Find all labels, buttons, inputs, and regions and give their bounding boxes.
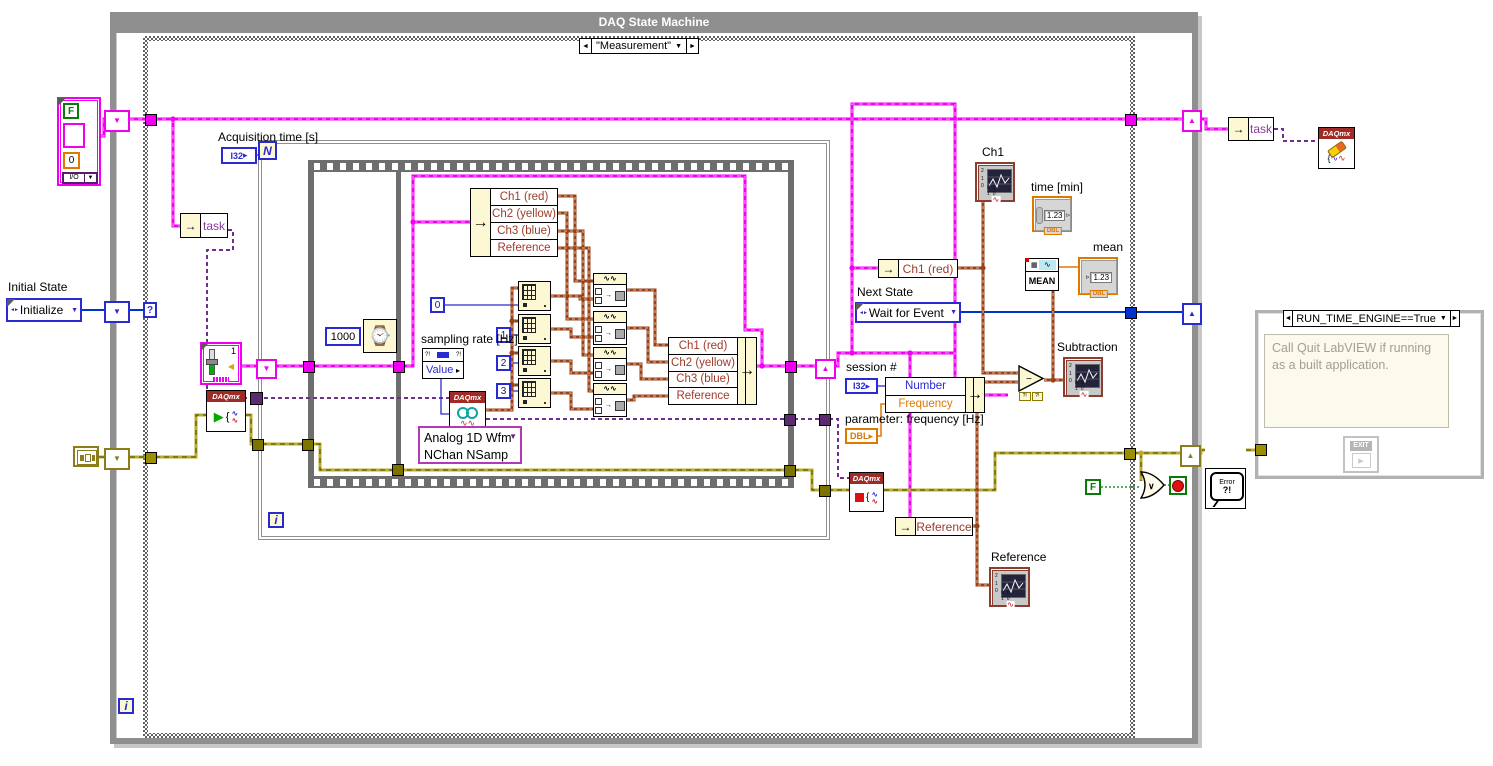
while-loop-iteration-terminal[interactable]: i — [118, 698, 134, 714]
array-grid-icon — [522, 317, 536, 333]
tunnel-error[interactable] — [1255, 444, 1267, 456]
for-loop-shift-register-right[interactable]: ▲ — [815, 359, 836, 379]
daqmx-stop-task-vi[interactable]: DAQmx { ∿∿ — [849, 472, 884, 512]
tunnel-task[interactable] — [784, 414, 796, 426]
task-unbundle-node-outer[interactable]: → task — [1228, 117, 1274, 141]
chevron-down-icon[interactable]: ▼ — [1440, 315, 1447, 322]
stop-square-icon — [855, 493, 864, 502]
reference-unbundle-node[interactable]: → Reference — [895, 517, 973, 536]
append-waveforms-vi[interactable]: ∿∿ → — [593, 383, 627, 417]
next-state-label: Next State — [857, 286, 913, 300]
indicator-value: 1.23 — [1044, 210, 1066, 221]
svg-text:∨: ∨ — [1148, 481, 1155, 491]
array-grid-icon — [522, 349, 536, 365]
coercion-dots: ?! ?! — [1019, 392, 1043, 401]
svg-text:−: − — [1026, 374, 1032, 385]
tunnel-error[interactable] — [252, 439, 264, 451]
daqmx-banner: DAQmx — [450, 392, 485, 403]
unbundle-field[interactable]: Ch3 (blue) — [491, 223, 557, 240]
index-array-node[interactable] — [518, 314, 551, 344]
mean-vi[interactable]: ▦ ∿ MEAN — [1025, 258, 1059, 291]
case-selector[interactable]: ◄ "Measurement"▼ ► — [579, 38, 699, 54]
tunnel-cluster[interactable] — [145, 114, 157, 126]
index-array-node[interactable] — [518, 281, 551, 311]
initial-state-value: Initialize — [20, 303, 63, 317]
case-prev-arrow[interactable]: ◄ — [580, 39, 592, 53]
chevron-down-icon[interactable]: ▼ — [675, 43, 682, 50]
bubble-tail — [1213, 500, 1220, 507]
chevron-down-icon[interactable]: ▼ — [71, 307, 78, 314]
selector-line1: Analog 1D Wfm — [424, 430, 516, 447]
daqmx-banner: DAQmx — [207, 391, 245, 402]
index-constant[interactable]: 2 — [496, 355, 511, 371]
bundle-field-number[interactable]: Number — [886, 378, 965, 396]
sequence-top-border[interactable] — [308, 160, 794, 172]
bundle-arrow-icon: → — [967, 386, 983, 404]
session-label: session # — [846, 361, 897, 375]
dbl-type-tag: DBL — [1044, 227, 1062, 235]
chevron-down-icon[interactable]: ▼ — [509, 432, 517, 443]
bundle-field[interactable]: Ch3 (blue) — [669, 372, 737, 389]
sequence-right-border[interactable] — [788, 160, 794, 488]
while-loop-title: DAQ State Machine — [110, 12, 1198, 33]
reference-field: Reference — [916, 518, 972, 535]
parameter-dbl-constant[interactable]: DBL▸ — [845, 428, 878, 444]
sequence-bottom-border[interactable] — [308, 476, 794, 488]
time-indicator[interactable]: 1.23 ▹ DBL — [1032, 196, 1072, 232]
enum-increment-icon[interactable]: ◄► — [10, 307, 18, 313]
parameter-label: parameter: frequency [Hz] — [845, 413, 984, 427]
ch1-red-field: Ch1 (red) — [899, 260, 957, 277]
append-waveforms-vi[interactable]: ∿∿ → — [593, 347, 627, 381]
ch1-red-unbundle-node[interactable]: → Ch1 (red) — [878, 259, 958, 278]
reference-chart-terminal[interactable]: 210 00 10 ∿ — [989, 567, 1030, 607]
tunnel-error[interactable] — [392, 464, 404, 476]
daqmx-clear-task-vi[interactable]: DAQmx {∿∿ — [1318, 127, 1355, 169]
append-waveforms-vi[interactable]: ∿∿ → — [593, 311, 627, 345]
labview-block-diagram: DAQ State Machine ◄ "Measurement"▼ ► ◄ R… — [0, 0, 1493, 766]
daqmx-banner: DAQmx — [850, 473, 883, 484]
for-loop-shift-register-left[interactable]: ▼ — [256, 359, 277, 379]
subtract-function[interactable]: − — [1018, 365, 1045, 393]
numeric-zero-constant[interactable]: 0 — [63, 152, 80, 169]
property-icon — [437, 352, 449, 358]
play-icon: ▶ — [214, 409, 224, 425]
read-polymorphic-selector[interactable]: Analog 1D Wfm NChan NSamp ▼ — [418, 426, 522, 464]
session-i32-constant[interactable]: I32▸ — [845, 378, 878, 394]
array-grid-icon — [522, 381, 536, 397]
index-constant[interactable]: 0 — [430, 297, 445, 313]
shift-register-left-error[interactable]: ▼ — [104, 448, 130, 470]
settings-cluster-constant[interactable]: F 0 I/O ▼ — [57, 97, 101, 186]
next-state-enum[interactable]: ◄► Wait for Event ▼ — [855, 302, 961, 323]
graph-icon: 210 00 10 ∿ — [992, 570, 1029, 606]
io-constant[interactable]: I/O ▼ — [62, 172, 98, 184]
tunnel-error[interactable] — [145, 452, 157, 464]
tunnel-error[interactable] — [1124, 448, 1136, 460]
error-cluster-constant[interactable] — [73, 446, 99, 467]
tunnel-enum[interactable] — [1125, 307, 1137, 319]
unbundle-field[interactable]: Ch1 (red) — [491, 189, 557, 206]
run-case-selector[interactable]: ◄ RUN_TIME_ENGINE==True▼ ► — [1283, 310, 1460, 327]
tunnel-cluster[interactable] — [303, 361, 315, 373]
channels-bundle-node[interactable]: Ch1 (red) Ch2 (yellow) Ch3 (blue) Refere… — [668, 337, 757, 405]
subvi-label-strip — [213, 377, 229, 382]
run-case-selector-label: RUN_TIME_ENGINE==True — [1296, 313, 1436, 325]
graph-icon: 210 00 10 ∿ — [978, 165, 1014, 201]
tunnel-error[interactable] — [302, 439, 314, 451]
wait-ms-constant[interactable]: 1000 — [325, 327, 361, 346]
i32-count-constant[interactable]: I32▸ — [221, 147, 257, 164]
mean-indicator-label: mean — [1093, 241, 1123, 255]
case-selector-terminal[interactable]: ? — [143, 302, 157, 318]
run-case-prev-arrow[interactable]: ◄ — [1284, 311, 1293, 326]
unbundle-field[interactable]: Ch2 (yellow) — [491, 206, 557, 223]
tunnel-error[interactable] — [784, 465, 796, 477]
speech-bubble-icon: Error ?! — [1210, 472, 1244, 501]
mean-indicator[interactable]: ▹ 1.23 DBL — [1078, 257, 1118, 295]
quit-labview-vi[interactable]: EXIT ▶ — [1343, 436, 1379, 473]
indicator-value: 1.23 — [1090, 272, 1112, 283]
subtraction-chart-terminal[interactable]: 210 00 10 ∿ — [1063, 357, 1103, 397]
tunnel-cluster[interactable] — [785, 361, 797, 373]
graph-icon: 210 00 10 ∿ — [1066, 360, 1102, 396]
param-bundle-node[interactable]: Number Frequency → — [885, 377, 985, 413]
stop-condition-terminal[interactable] — [1169, 476, 1187, 495]
reference-chart-label: Reference — [991, 551, 1046, 565]
exit-label: EXIT — [1350, 441, 1372, 451]
unbundle-arrow-icon: → — [896, 518, 916, 535]
tunnel-task[interactable] — [819, 414, 831, 426]
init-position-subvi[interactable]: 1 ◀ — [200, 342, 242, 385]
mean-label: MEAN — [1026, 272, 1058, 290]
bundle-field[interactable]: Reference — [669, 388, 737, 404]
bundle-field[interactable]: Ch2 (yellow) — [669, 355, 737, 372]
tunnel-error[interactable] — [819, 485, 831, 497]
wave-icon: ∿ — [1039, 260, 1056, 270]
task-unbundle-node[interactable]: → task — [180, 213, 228, 238]
task-field-label: task — [1249, 118, 1273, 140]
daqmx-banner: DAQmx — [1319, 128, 1354, 139]
shift-register-right-error[interactable]: ▲ — [1180, 445, 1201, 467]
index-array-node[interactable] — [518, 378, 551, 408]
element-icon — [544, 305, 546, 307]
tunnel-task[interactable] — [250, 392, 263, 405]
ch1-chart-terminal[interactable]: 210 00 10 ∿ — [975, 162, 1015, 202]
boolean-false-constant[interactable]: F — [1085, 479, 1101, 495]
pointer-icon: ◀ — [228, 362, 234, 371]
channels-unbundle-node[interactable]: → Ch1 (red) Ch2 (yellow) Ch3 (blue) Refe… — [470, 188, 558, 257]
next-state-value: Wait for Event — [869, 306, 944, 320]
knob-icon — [1036, 207, 1043, 224]
dbl-type-tag: DBL — [1090, 290, 1108, 298]
shift-register-left-state[interactable]: ▼ — [104, 301, 130, 323]
boolean-false-constant[interactable]: F — [63, 103, 79, 119]
run-case-next-arrow[interactable]: ► — [1450, 311, 1459, 326]
shift-register-right-cluster[interactable]: ▲ — [1182, 110, 1202, 132]
index-array-node[interactable] — [518, 346, 551, 376]
append-waveforms-vi[interactable]: ∿∿ → — [593, 273, 627, 307]
bundle-field[interactable]: Ch1 (red) — [669, 338, 737, 355]
unbundle-arrow-icon: → — [471, 189, 491, 256]
bundle-output-strip: → — [965, 378, 984, 412]
bundle-field-frequency[interactable]: Frequency — [886, 396, 965, 413]
shift-register-right-state[interactable]: ▲ — [1182, 303, 1202, 325]
shift-register-left-cluster[interactable]: ▼ — [104, 110, 130, 132]
tunnel-cluster[interactable] — [393, 361, 405, 373]
time-indicator-label: time [min] — [1031, 181, 1083, 195]
waveform-icon: ∿∿ — [594, 274, 626, 285]
io-glyph: I/O — [64, 174, 84, 182]
array-grid-icon — [522, 284, 536, 300]
case-selector-label: "Measurement" — [596, 40, 671, 52]
unbundle-field[interactable]: Reference — [491, 240, 557, 256]
for-loop-iteration-terminal[interactable]: i — [268, 512, 284, 528]
disabled-play-icon: ▶ — [1352, 453, 1371, 468]
empty-cluster-element[interactable] — [63, 123, 85, 148]
simple-error-handler-vi[interactable]: Error ?! — [1205, 468, 1246, 509]
slider-thumb-icon — [206, 359, 218, 365]
unbundle-arrow-icon: → — [879, 260, 899, 277]
subtraction-chart-label: Subtraction — [1057, 341, 1118, 355]
run-case-comment[interactable]: Call Quit LabVIEW if running as a built … — [1264, 334, 1449, 428]
subvi-value: 1 — [231, 346, 236, 356]
unbundle-arrow-icon: → — [181, 214, 201, 237]
initial-state-label: Initial State — [8, 281, 67, 295]
ch1-chart-label: Ch1 — [982, 146, 1004, 160]
bundle-output-strip: → — [737, 338, 756, 404]
sampling-rate-property-node[interactable]: ?!?! Value▸ — [422, 348, 464, 379]
terminal-dot — [1025, 258, 1029, 262]
wait-ms-clock-icon[interactable]: ⌚ — [363, 319, 397, 353]
tunnel-cluster[interactable] — [1125, 114, 1137, 126]
sampling-rate-label: sampling rate [Hz] — [421, 333, 518, 347]
unbundle-arrow-icon: → — [1229, 118, 1249, 140]
stop-sign-icon — [1172, 480, 1184, 492]
property-value-label: Value — [426, 364, 453, 376]
selector-line2: NChan NSamp — [424, 447, 516, 464]
or-function[interactable]: ∨ — [1140, 471, 1166, 499]
for-loop-label: Acquisition time [s] — [218, 131, 318, 145]
goggles-icon — [457, 407, 478, 419]
bundle-arrow-icon: → — [739, 362, 755, 380]
initial-state-enum[interactable]: ◄► Initialize ▼ — [6, 298, 82, 322]
index-constant[interactable]: 3 — [496, 383, 511, 399]
matrix-icon: ▦ — [1031, 261, 1038, 269]
chevron-down-icon[interactable]: ▼ — [84, 174, 96, 182]
chevron-down-icon[interactable]: ▼ — [950, 309, 957, 316]
daqmx-start-task-vi[interactable]: DAQmx ▶ { ∿∿ — [206, 390, 246, 432]
case-next-arrow[interactable]: ► — [686, 39, 698, 53]
task-field-label: task — [201, 214, 227, 237]
